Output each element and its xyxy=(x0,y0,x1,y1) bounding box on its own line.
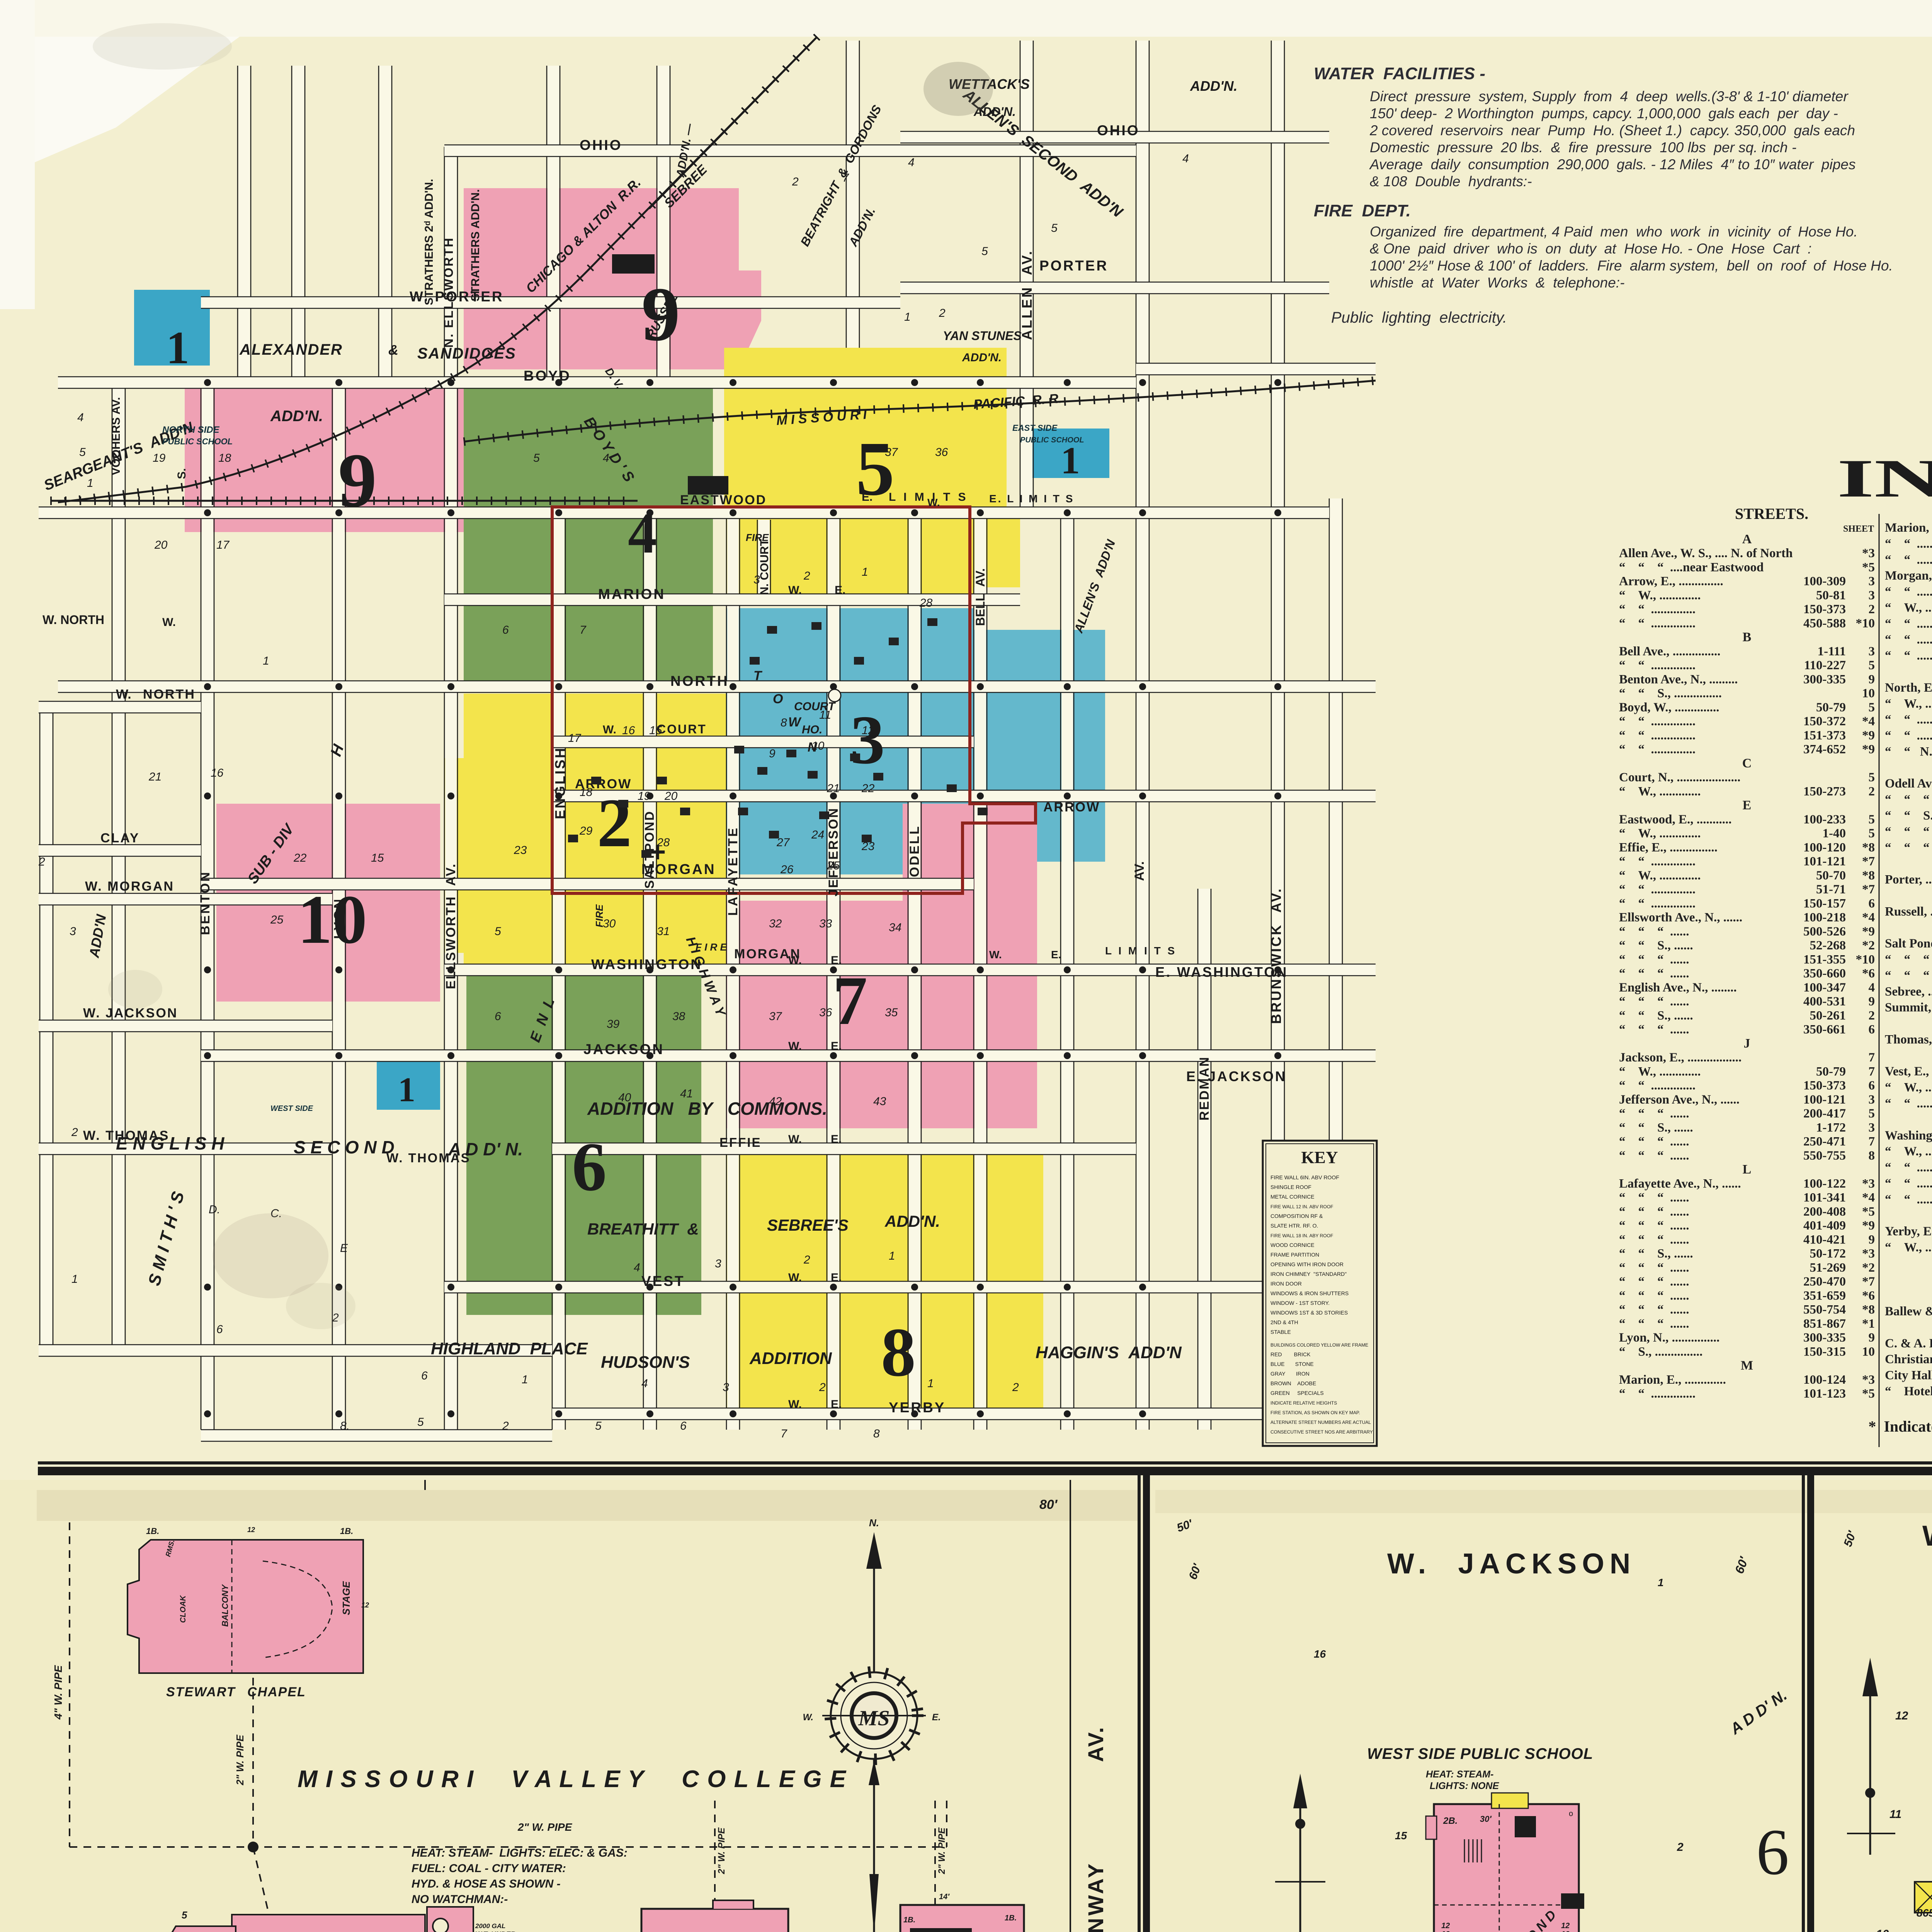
svg-text:“ “ ..............: “ “ .............. xyxy=(1885,617,1932,631)
svg-text:W.: W. xyxy=(788,584,802,597)
svg-text:IRON CHIMNEY "STANDARD": IRON CHIMNEY "STANDARD" xyxy=(1270,1271,1347,1277)
svg-text:4" W. PIPE: 4" W. PIPE xyxy=(52,1665,64,1720)
svg-text:*3: *3 xyxy=(1862,1247,1875,1261)
svg-text:6: 6 xyxy=(680,1420,687,1432)
svg-text:SHINGLE ROOF: SHINGLE ROOF xyxy=(1270,1184,1311,1190)
svg-text:“ “ S., ......: “ “ S., ...... xyxy=(1885,809,1932,823)
svg-text:METAL CORNICE: METAL CORNICE xyxy=(1270,1194,1315,1200)
svg-text:SANDIDGES: SANDIDGES xyxy=(417,345,516,362)
svg-text:“ “ “ ......: “ “ “ ...... xyxy=(1619,1289,1689,1303)
svg-text:B: B xyxy=(1743,630,1752,645)
svg-text:*2: *2 xyxy=(1862,939,1875,952)
svg-text:1: 1 xyxy=(904,311,911,323)
svg-text:7: 7 xyxy=(1869,1051,1875,1065)
svg-text:9: 9 xyxy=(1869,1233,1875,1247)
svg-text:2: 2 xyxy=(502,1420,509,1432)
svg-text:5: 5 xyxy=(1869,813,1875,827)
svg-text:Yerby, E., ...............: Yerby, E., ............... xyxy=(1885,1225,1932,1238)
svg-text:41: 41 xyxy=(680,1087,693,1100)
svg-text:200-417: 200-417 xyxy=(1803,1107,1846,1121)
svg-text:9: 9 xyxy=(338,438,377,523)
svg-text:37: 37 xyxy=(769,1010,782,1023)
svg-text:ADD'N.: ADD'N. xyxy=(270,408,323,425)
svg-text:1: 1 xyxy=(889,1250,895,1262)
svg-text:9: 9 xyxy=(1869,995,1875,1009)
svg-text:& One paid driver who is o: & One paid driver who is on duty at Hose… xyxy=(1370,241,1811,257)
svg-text:100-347: 100-347 xyxy=(1803,981,1846,995)
svg-text:BRUNSWICK AV.: BRUNSWICK AV. xyxy=(1268,887,1284,1024)
svg-text:N.: N. xyxy=(869,1517,879,1529)
svg-text:150-273: 150-273 xyxy=(1803,784,1846,798)
svg-text:110-227: 110-227 xyxy=(1804,658,1846,672)
svg-text:“ “ “ ......: “ “ “ ...... xyxy=(1885,841,1932,855)
svg-text:“ “ “ ......: “ “ “ ...... xyxy=(1619,1275,1689,1289)
svg-text:“ “ “ ......: “ “ “ ...... xyxy=(1619,967,1689,981)
svg-text:*5: *5 xyxy=(1862,1205,1875,1219)
svg-text:1: 1 xyxy=(87,477,94,490)
svg-text:12: 12 xyxy=(1561,1930,1570,1932)
svg-text:50-79: 50-79 xyxy=(1816,701,1846,714)
svg-text:17: 17 xyxy=(216,539,230,551)
svg-text:16: 16 xyxy=(622,724,635,737)
svg-text:BREATHITT &: BREATHITT & xyxy=(587,1220,699,1238)
svg-text:2000 GAL: 2000 GAL xyxy=(475,1922,505,1930)
svg-text:WINDOWS 1ST & 3D STORIES: WINDOWS 1ST & 3D STORIES xyxy=(1270,1310,1348,1316)
svg-text:9: 9 xyxy=(641,272,680,357)
svg-text:32: 32 xyxy=(769,917,782,930)
svg-text:2: 2 xyxy=(792,175,799,188)
svg-text:FIRE WALL 12 IN. ABV ROOF: FIRE WALL 12 IN. ABV ROOF xyxy=(1270,1204,1333,1209)
svg-text:E.: E. xyxy=(932,1712,941,1723)
svg-text:“ “ “ ......: “ “ “ ...... xyxy=(1619,1135,1689,1149)
svg-text:W. SUMMIT: W. SUMMIT xyxy=(1922,1520,1932,1552)
svg-text:28: 28 xyxy=(919,597,933,609)
svg-text:6: 6 xyxy=(1869,896,1875,910)
svg-text:100-309: 100-309 xyxy=(1803,575,1846,588)
svg-text:100-121: 100-121 xyxy=(1803,1093,1846,1107)
svg-text:Summit, W., ..................: Summit, W., .................. xyxy=(1885,1001,1932,1015)
svg-text:“ W., .............: “ W., ............. xyxy=(1619,1065,1701,1078)
svg-text:“ “ N. S., near Water W’k: “ “ N. S., near Water W’ks xyxy=(1885,745,1932,759)
svg-text:CHAPEL: CHAPEL xyxy=(247,1685,306,1699)
svg-text:865½: 865½ xyxy=(1917,1907,1932,1919)
svg-text:HIGHLAND PLACE: HIGHLAND PLACE xyxy=(431,1339,588,1358)
svg-text:“ “ “ “ ..: “ “ “ “ .. xyxy=(1885,969,1932,983)
svg-text:4: 4 xyxy=(628,501,657,565)
svg-text:1B.: 1B. xyxy=(903,1916,915,1924)
svg-text:“ “ S., ......: “ “ S., ...... xyxy=(1619,1009,1693,1022)
svg-text:&: & xyxy=(388,342,398,358)
svg-text:“ W., .............: “ W., ............. xyxy=(1619,784,1701,798)
svg-text:6: 6 xyxy=(1869,1023,1875,1037)
svg-text:STAGE: STAGE xyxy=(340,1581,352,1615)
svg-text:“ W., ....................: “ W., .................... xyxy=(1885,1241,1932,1255)
svg-text:WINDOWS & IRON SHUTTERS: WINDOWS & IRON SHUTTERS xyxy=(1270,1290,1349,1296)
svg-text:1000' 2½″ Hose & 100' of ladd: 1000' 2½″ Hose & 100' of ladders. Fire a… xyxy=(1370,258,1893,274)
svg-text:42: 42 xyxy=(769,1095,782,1108)
svg-text:2: 2 xyxy=(819,1381,826,1394)
svg-text:City Hall, ...................: City Hall, ..................... xyxy=(1885,1369,1932,1383)
svg-text:ALLEN AV.: ALLEN AV. xyxy=(1019,250,1035,340)
svg-text:2: 2 xyxy=(597,784,632,861)
svg-text:18: 18 xyxy=(218,452,231,464)
svg-text:“ “ “ ......: “ “ “ ...... xyxy=(1885,825,1932,838)
svg-text:16: 16 xyxy=(211,767,224,779)
svg-text:E.: E. xyxy=(1051,949,1061,961)
svg-text:English Ave., N., ........: English Ave., N., ........ xyxy=(1619,981,1737,995)
svg-text:150-157: 150-157 xyxy=(1803,896,1846,910)
svg-text:“ “ ..............: “ “ .............. xyxy=(1885,553,1932,567)
svg-text:A D D' N.: A D D' N. xyxy=(448,1139,523,1159)
svg-text:COMPOSITION RF &: COMPOSITION RF & xyxy=(1270,1213,1323,1219)
svg-text:“ “ “ ......: “ “ “ ...... xyxy=(1619,1317,1689,1331)
svg-text:N. ELLSWORTH: N. ELLSWORTH xyxy=(441,237,456,348)
svg-text:“ “ ..............: “ “ .............. xyxy=(1619,1079,1696,1093)
svg-text:*8: *8 xyxy=(1862,869,1875,883)
svg-text:Court, N., ...................: Court, N., .................... xyxy=(1619,770,1740,784)
svg-text:M I S S O U R I V A L L E: M I S S O U R I V A L L E Y C O L L E G … xyxy=(298,1766,847,1793)
svg-text:SEBREE'S: SEBREE'S xyxy=(767,1216,849,1234)
svg-text:“ “ ..............: “ “ .............. xyxy=(1619,616,1696,630)
svg-text:3: 3 xyxy=(850,701,885,778)
svg-text:1B.: 1B. xyxy=(1005,1914,1017,1922)
svg-text:7: 7 xyxy=(1869,1135,1875,1149)
svg-text:*6: *6 xyxy=(1862,1289,1875,1303)
svg-text:“ “ ..............: “ “ .............. xyxy=(1619,728,1696,742)
svg-text:2: 2 xyxy=(1677,1841,1684,1854)
svg-text:4: 4 xyxy=(603,452,609,464)
svg-text:HO.: HO. xyxy=(802,723,822,736)
svg-text:4: 4 xyxy=(634,1261,640,1274)
svg-text:FIRE WALL 6IN. ABV ROOF: FIRE WALL 6IN. ABV ROOF xyxy=(1270,1174,1339,1180)
svg-text:150-315: 150-315 xyxy=(1803,1345,1846,1359)
svg-text:E: E xyxy=(340,1242,348,1255)
svg-text:1: 1 xyxy=(71,1273,78,1286)
svg-text:“ “ ..............: “ “ .............. xyxy=(1885,633,1932,647)
svg-text:*3: *3 xyxy=(1862,1373,1875,1387)
svg-text:BENTON: BENTON xyxy=(198,871,213,935)
svg-text:WASHINGTON: WASHINGTON xyxy=(591,956,702,972)
svg-text:11: 11 xyxy=(819,709,831,721)
svg-text:100-122: 100-122 xyxy=(1803,1177,1846,1190)
svg-text:1: 1 xyxy=(927,1377,934,1390)
svg-text:19: 19 xyxy=(638,790,651,803)
svg-text:“ “ “ ......: “ “ “ ...... xyxy=(1619,1219,1689,1233)
svg-text:L: L xyxy=(1743,1162,1752,1177)
svg-text:1: 1 xyxy=(862,566,868,578)
svg-text:150-372: 150-372 xyxy=(1803,714,1846,728)
svg-text:E.: E. xyxy=(831,1133,842,1146)
svg-text:D.: D. xyxy=(209,1203,220,1216)
svg-text:W. NORTH: W. NORTH xyxy=(43,613,104,627)
svg-text:50-79: 50-79 xyxy=(1816,1065,1846,1078)
svg-text:5: 5 xyxy=(1051,222,1058,235)
svg-text:50-81: 50-81 xyxy=(1816,588,1846,602)
svg-text:500-526: 500-526 xyxy=(1803,925,1846,939)
svg-text:5: 5 xyxy=(595,1420,602,1432)
svg-text:6: 6 xyxy=(421,1369,428,1382)
svg-text:6: 6 xyxy=(502,624,509,636)
svg-text:*7: *7 xyxy=(1862,1275,1875,1289)
svg-text:“ W., .............: “ W., ............. xyxy=(1619,827,1701,840)
svg-text:*9: *9 xyxy=(1862,728,1875,742)
svg-text:101-121: 101-121 xyxy=(1803,855,1846,869)
svg-text:“ “ S., ...............: “ “ S., ............... xyxy=(1619,687,1722,701)
svg-text:HYD. & HOSE AS SHOWN -: HYD. & HOSE AS SHOWN - xyxy=(412,1878,561,1890)
svg-text:*10: *10 xyxy=(1856,616,1875,630)
svg-text:W.: W. xyxy=(803,1712,813,1723)
svg-text:1B.: 1B. xyxy=(146,1526,159,1536)
svg-text:Odell Ave., N., ..........: Odell Ave., N., .......... xyxy=(1885,777,1932,791)
svg-text:4: 4 xyxy=(908,156,915,169)
svg-text:BOYD: BOYD xyxy=(524,368,571,384)
svg-text:C: C xyxy=(1742,756,1752,770)
svg-text:Jackson, E., .................: Jackson, E., ................. xyxy=(1619,1051,1742,1065)
svg-text:HUDSON'S: HUDSON'S xyxy=(601,1353,690,1372)
svg-text:BUILDINGS COLORED YELLOW ARE F: BUILDINGS COLORED YELLOW ARE FRAME xyxy=(1270,1342,1368,1348)
svg-text:*3: *3 xyxy=(1862,1177,1875,1190)
svg-text:STRATHERS 2ᵈ ADD'N.: STRATHERS 2ᵈ ADD'N. xyxy=(423,179,435,305)
svg-text:9: 9 xyxy=(769,747,776,760)
svg-text:MS: MS xyxy=(858,1706,890,1730)
svg-text:EFFIE: EFFIE xyxy=(719,1135,762,1150)
svg-text:PUBLIC SCHOOL: PUBLIC SCHOOL xyxy=(1020,436,1084,444)
svg-text:3: 3 xyxy=(723,1381,729,1394)
svg-text:100-120: 100-120 xyxy=(1803,840,1846,854)
svg-text:8: 8 xyxy=(881,1314,916,1391)
svg-text:HAGGIN'S ADD'N: HAGGIN'S ADD'N xyxy=(1036,1343,1182,1362)
svg-text:50-70: 50-70 xyxy=(1816,869,1846,883)
svg-text:Vest, E., ................: Vest, E., ................ xyxy=(1885,1065,1932,1078)
svg-text:“ “ “ ......: “ “ “ ...... xyxy=(1619,1233,1689,1247)
svg-text:*4: *4 xyxy=(1862,714,1875,728)
svg-text:5: 5 xyxy=(182,1909,187,1921)
svg-text:E.: E. xyxy=(831,1040,842,1053)
svg-text:39: 39 xyxy=(607,1018,620,1031)
svg-text:2" W. PIPE: 2" W. PIPE xyxy=(937,1827,947,1874)
svg-text:30′: 30′ xyxy=(1480,1814,1492,1824)
svg-text:2B.: 2B. xyxy=(1443,1816,1458,1826)
svg-text:Average daily consumption 2: Average daily consumption 290,000 gals. … xyxy=(1369,156,1856,172)
svg-text:“ “ S., ......: “ “ S., ...... xyxy=(1619,1121,1693,1134)
svg-text:*7: *7 xyxy=(1862,855,1875,869)
svg-text:“ “ S., ......: “ “ S., ...... xyxy=(1619,939,1693,952)
svg-text:NORTH: NORTH xyxy=(670,673,729,689)
svg-text:W.: W. xyxy=(162,616,176,629)
svg-text:410-421: 410-421 xyxy=(1803,1233,1846,1247)
svg-text:“ W., .............: “ W., ............. xyxy=(1885,1081,1932,1095)
svg-text:CONSECUTIVE STREET NOS ARE ARB: CONSECUTIVE STREET NOS ARE ARBITRARY xyxy=(1270,1429,1373,1435)
svg-text:GREEN SPECIALS: GREEN SPECIALS xyxy=(1270,1390,1324,1396)
svg-text:15: 15 xyxy=(371,852,384,864)
svg-text:350-660: 350-660 xyxy=(1803,967,1846,981)
svg-text:“ “ ..............: “ “ .............. xyxy=(1619,855,1696,869)
svg-text:YAN STUNES: YAN STUNES xyxy=(943,329,1022,343)
svg-text:“ “ “ ......: “ “ “ ...... xyxy=(1619,1149,1689,1163)
svg-text:F I R E: F I R E xyxy=(696,941,727,953)
svg-text:374-652: 374-652 xyxy=(1803,743,1846,757)
svg-text:STRATHERS ADD'N.: STRATHERS ADD'N. xyxy=(469,189,482,301)
svg-text:5: 5 xyxy=(533,452,540,464)
svg-text:ELLSWORTH AV.: ELLSWORTH AV. xyxy=(444,863,458,989)
svg-text:*6: *6 xyxy=(1862,967,1875,981)
svg-text:W: W xyxy=(788,715,802,730)
svg-text:“ W., .............: “ W., ............. xyxy=(1619,869,1701,883)
svg-text:Benton Ave., N., .........: Benton Ave., N., ......... xyxy=(1619,672,1738,686)
svg-text:SLATE HTR. RF. O.: SLATE HTR. RF. O. xyxy=(1270,1223,1318,1229)
svg-text:FIRE STATION, AS SHOWN ON KEY: FIRE STATION, AS SHOWN ON KEY MAP. xyxy=(1270,1410,1360,1415)
svg-text:550-754: 550-754 xyxy=(1803,1303,1846,1317)
svg-text:15: 15 xyxy=(649,724,662,737)
svg-text:ARROW: ARROW xyxy=(1043,800,1100,815)
svg-text:151-373: 151-373 xyxy=(1803,728,1846,742)
svg-text:2ND & 4TH: 2ND & 4TH xyxy=(1270,1319,1298,1325)
svg-text:4: 4 xyxy=(1869,981,1875,995)
svg-text:E. L I M I T S: E. L I M I T S xyxy=(989,493,1074,505)
svg-text:21: 21 xyxy=(148,770,162,783)
svg-text:HEAT: STEAM-: HEAT: STEAM- xyxy=(1426,1769,1493,1780)
svg-text:7: 7 xyxy=(842,172,849,184)
svg-text:“ “ ..............: “ “ .............. xyxy=(1619,714,1696,728)
svg-text:“ “ ..............: “ “ .............. xyxy=(1885,649,1932,663)
svg-text:NORTH: NORTH xyxy=(143,687,196,702)
svg-text:1-111: 1-111 xyxy=(1818,645,1846,658)
svg-text:“ “ ...........: “ “ ........... xyxy=(1885,1177,1932,1190)
svg-text:2" W. PIPE: 2" W. PIPE xyxy=(517,1821,573,1833)
svg-text:6: 6 xyxy=(1756,1816,1789,1888)
svg-text:3: 3 xyxy=(1869,645,1875,658)
svg-text:“ Hotel, ..................: “ Hotel, ................... xyxy=(1885,1384,1932,1398)
svg-text:W.: W. xyxy=(788,1133,802,1146)
svg-text:3: 3 xyxy=(1869,1121,1875,1134)
svg-text:W.: W. xyxy=(603,723,616,736)
svg-text:WATER FACILITIES -: WATER FACILITIES - xyxy=(1314,64,1485,83)
svg-text:300-335: 300-335 xyxy=(1803,672,1846,686)
svg-text:S E C O N D: S E C O N D xyxy=(294,1137,395,1157)
svg-text:401-409: 401-409 xyxy=(1803,1219,1846,1233)
svg-text:550-755: 550-755 xyxy=(1803,1149,1846,1163)
svg-text:4: 4 xyxy=(1182,152,1189,165)
svg-text:*7: *7 xyxy=(1862,883,1875,896)
svg-text:FUEL: COAL - CITY WATER:: FUEL: COAL - CITY WATER: xyxy=(412,1862,566,1875)
svg-text:E.: E. xyxy=(831,1398,842,1411)
svg-text:Effie, E., ...............: Effie, E., ............... xyxy=(1619,840,1718,854)
svg-text:IRON DOOR: IRON DOOR xyxy=(1270,1281,1302,1287)
svg-text:BROWN ADOBE: BROWN ADOBE xyxy=(1270,1380,1316,1386)
svg-text:Morgan, E., .............: Morgan, E., ............. xyxy=(1885,569,1932,583)
svg-text:2: 2 xyxy=(1869,784,1875,798)
svg-text:Allen Ave., W. S., .... N. of: Allen Ave., W. S., .... N. of North xyxy=(1619,546,1793,560)
svg-text:300-335: 300-335 xyxy=(1803,1331,1846,1345)
svg-text:10: 10 xyxy=(298,881,367,958)
svg-text:whistle at Water Works &: whistle at Water Works & telephone:- xyxy=(1370,275,1624,291)
svg-text:RED BRICK: RED BRICK xyxy=(1270,1351,1311,1357)
svg-text:3: 3 xyxy=(1869,588,1875,602)
svg-text:Arrow, E., ..............: Arrow, E., .............. xyxy=(1619,575,1723,588)
svg-text:W. MORGAN: W. MORGAN xyxy=(85,879,174,894)
svg-text:7: 7 xyxy=(580,624,587,636)
svg-text:17: 17 xyxy=(568,732,582,745)
svg-text:1: 1 xyxy=(1658,1577,1664,1588)
svg-text:25: 25 xyxy=(827,859,840,872)
svg-text:“ “ ..............: “ “ .............. xyxy=(1619,883,1696,896)
svg-text:Salt Pond Ave., N., ......: Salt Pond Ave., N., ...... xyxy=(1885,937,1932,951)
svg-text:“ “ “ ......: “ “ “ ...... xyxy=(1619,925,1689,939)
svg-text:150-373: 150-373 xyxy=(1803,602,1846,616)
svg-text:HEAT: STEAM- LIGHTS: ELEC: &: HEAT: STEAM- LIGHTS: ELEC: & GAS: xyxy=(412,1847,628,1859)
svg-text:5: 5 xyxy=(79,446,86,459)
svg-text:North, E., ...............: North, E., ............... xyxy=(1885,681,1932,695)
svg-text:1: 1 xyxy=(263,655,269,667)
svg-text:ALEXANDER: ALEXANDER xyxy=(239,341,343,358)
svg-text:7: 7 xyxy=(1869,1065,1875,1078)
svg-text:Public lighting electricity.: Public lighting electricity. xyxy=(1331,309,1507,326)
svg-text:400-531: 400-531 xyxy=(1803,995,1846,1009)
svg-text:T: T xyxy=(753,668,763,683)
svg-text:20: 20 xyxy=(664,790,678,803)
svg-text:FRAME PARTITION: FRAME PARTITION xyxy=(1270,1252,1319,1258)
svg-text:E.: E. xyxy=(831,1271,842,1284)
svg-text:CONWAY: CONWAY xyxy=(1083,1861,1108,1932)
svg-text:5: 5 xyxy=(856,426,895,512)
svg-text:O: O xyxy=(773,692,783,706)
svg-text:REDMAN: REDMAN xyxy=(1197,1056,1212,1121)
svg-text:ALTERNATE STREET NUMBERS ARE A: ALTERNATE STREET NUMBERS ARE ACTUAL xyxy=(1270,1420,1371,1425)
svg-text:8: 8 xyxy=(1869,1149,1875,1163)
svg-text:OPENING WITH IRON DOOR: OPENING WITH IRON DOOR xyxy=(1270,1261,1344,1267)
svg-text:23: 23 xyxy=(514,844,527,857)
svg-text:Sebree, ......................: Sebree, ....................... xyxy=(1885,985,1932,998)
svg-text:36: 36 xyxy=(935,446,948,459)
svg-text:“ “ ...........: “ “ ........... xyxy=(1885,1161,1932,1175)
svg-text:10: 10 xyxy=(811,740,825,752)
svg-text:9: 9 xyxy=(1869,672,1875,686)
svg-text:INDEX.: INDEX. xyxy=(1837,449,1932,509)
svg-text:“ “ ...........: “ “ ........... xyxy=(1885,1192,1932,1206)
svg-text:*5: *5 xyxy=(1862,1387,1875,1401)
svg-text:STABLE: STABLE xyxy=(1270,1329,1291,1335)
svg-text:10: 10 xyxy=(1876,1928,1889,1932)
svg-text:21: 21 xyxy=(827,782,840,795)
svg-text:1-40: 1-40 xyxy=(1823,827,1846,840)
svg-text:Marion, E., .............: Marion, E., ............. xyxy=(1619,1373,1726,1387)
svg-text:6: 6 xyxy=(216,1323,223,1336)
svg-text:CLOAK: CLOAK xyxy=(179,1595,187,1623)
svg-text:851-867: 851-867 xyxy=(1803,1317,1846,1331)
svg-text:JACKSON: JACKSON xyxy=(583,1041,664,1057)
svg-text:W.: W. xyxy=(927,497,940,509)
svg-text:*4: *4 xyxy=(1862,911,1875,925)
svg-text:250-470: 250-470 xyxy=(1803,1275,1846,1289)
svg-text:8: 8 xyxy=(781,716,787,729)
svg-text:NO WATCHMAN:-: NO WATCHMAN:- xyxy=(412,1893,508,1906)
svg-text:COURT: COURT xyxy=(657,722,707,736)
svg-text:7: 7 xyxy=(833,962,867,1039)
svg-text:7: 7 xyxy=(781,1427,787,1440)
svg-text:10: 10 xyxy=(1862,1345,1875,1359)
svg-text:BALCONY: BALCONY xyxy=(220,1584,230,1627)
svg-text:5: 5 xyxy=(1869,770,1875,784)
svg-text:5: 5 xyxy=(1869,701,1875,714)
svg-text:Organized fire department, 4: Organized fire department, 4 Paid men wh… xyxy=(1370,224,1858,240)
svg-text:36: 36 xyxy=(819,1006,832,1019)
svg-text:*8: *8 xyxy=(1862,1303,1875,1317)
svg-text:12: 12 xyxy=(1441,1930,1450,1932)
svg-text:4: 4 xyxy=(641,1377,648,1390)
svg-text:E: E xyxy=(1743,798,1752,813)
svg-text:29: 29 xyxy=(579,825,593,837)
svg-text:Direct pressure system, Supp: Direct pressure system, Supply from 4 de… xyxy=(1370,88,1849,104)
